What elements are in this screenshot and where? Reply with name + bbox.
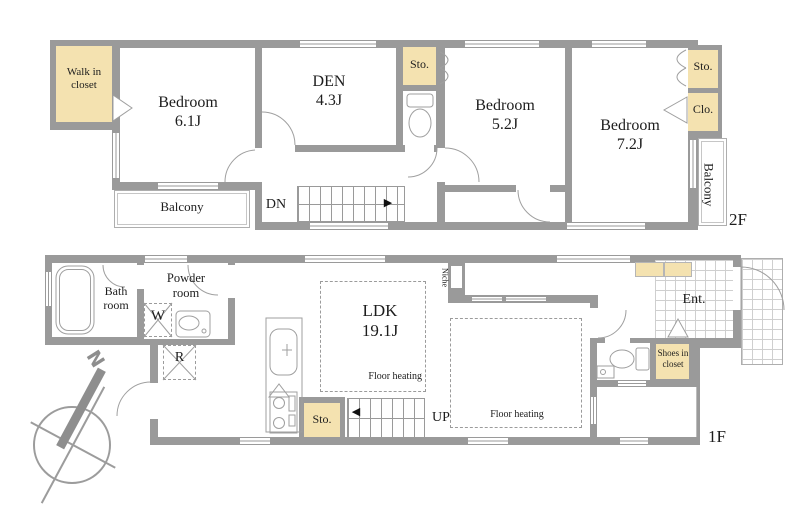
door-arc (225, 150, 255, 182)
label-floor-heating-left: Floor heating (318, 371, 422, 383)
label-stairs-down: DN (258, 197, 294, 214)
label-bedroom-52: Bedroom 5.2J (445, 97, 565, 135)
bifold-door-icon (677, 50, 686, 86)
floorplan-canvas: Walk in closet Bedroom 6.1J DEN 4.3J Sto… (0, 0, 810, 513)
label-bath-room: Bath room (92, 284, 140, 312)
toilet-icon (407, 94, 433, 107)
toilet-icon (636, 348, 649, 370)
label-washer: W (144, 308, 172, 326)
door-arc (518, 190, 550, 222)
label-niche: Niche (440, 260, 449, 296)
label-closet-2f: Clo. (687, 102, 719, 116)
label-stairs-up: UP (425, 410, 457, 427)
kitchen-faucet (282, 344, 292, 356)
label-floor-1f: 1F (698, 427, 736, 447)
label-walk-in-closet: Walk in closet (50, 66, 118, 92)
label-storage-1f: Sto. (303, 412, 341, 426)
stove-burner (274, 418, 285, 429)
stove-burner (274, 398, 285, 409)
label-balcony-left: Balcony (130, 199, 234, 214)
label-refrigerator: R (163, 350, 196, 367)
label-shoes-closet: Shoes in closet (654, 348, 692, 369)
bathtub-icon (56, 266, 94, 334)
bifold-door-icon (440, 52, 448, 84)
stairs-down-arrow-icon: ▶ (381, 197, 395, 210)
label-den: DEN 4.3J (272, 73, 386, 111)
kitchen-sink-icon (270, 329, 297, 375)
toilet-icon (409, 109, 431, 137)
toilet-icon (610, 350, 634, 368)
toilet-basin-icon (601, 370, 606, 375)
door-arc (262, 112, 295, 145)
door-arc (408, 148, 437, 177)
fixtures-layer (0, 0, 810, 513)
door-arc (598, 310, 626, 338)
stove-grill (289, 415, 295, 426)
stove-grill (289, 396, 295, 411)
label-floor-2f: 2F (720, 210, 756, 230)
entrance-door-arc (741, 267, 784, 310)
washbasin-faucet (202, 329, 206, 333)
step-marker (269, 384, 289, 397)
door-arc (445, 148, 479, 182)
stairs-up-arrow-icon: ◀ (349, 406, 363, 419)
label-ldk: LDK 19.1J (328, 301, 432, 341)
label-bedroom-61: Bedroom 6.1J (128, 94, 248, 132)
bathtub-icon (60, 270, 91, 331)
label-storage-2f-right: Sto. (687, 59, 719, 73)
label-powder-room: Powder room (148, 271, 224, 301)
washbasin-icon (179, 316, 199, 330)
label-balcony-right: Balcony (701, 150, 716, 220)
door-arc (117, 382, 151, 416)
step-marker (668, 319, 688, 337)
label-floor-heating-right: Floor heating (455, 409, 579, 421)
label-entrance: Ent. (671, 292, 717, 309)
label-bedroom-72: Bedroom 7.2J (571, 117, 689, 155)
label-storage-2f-mid: Sto. (402, 57, 437, 71)
